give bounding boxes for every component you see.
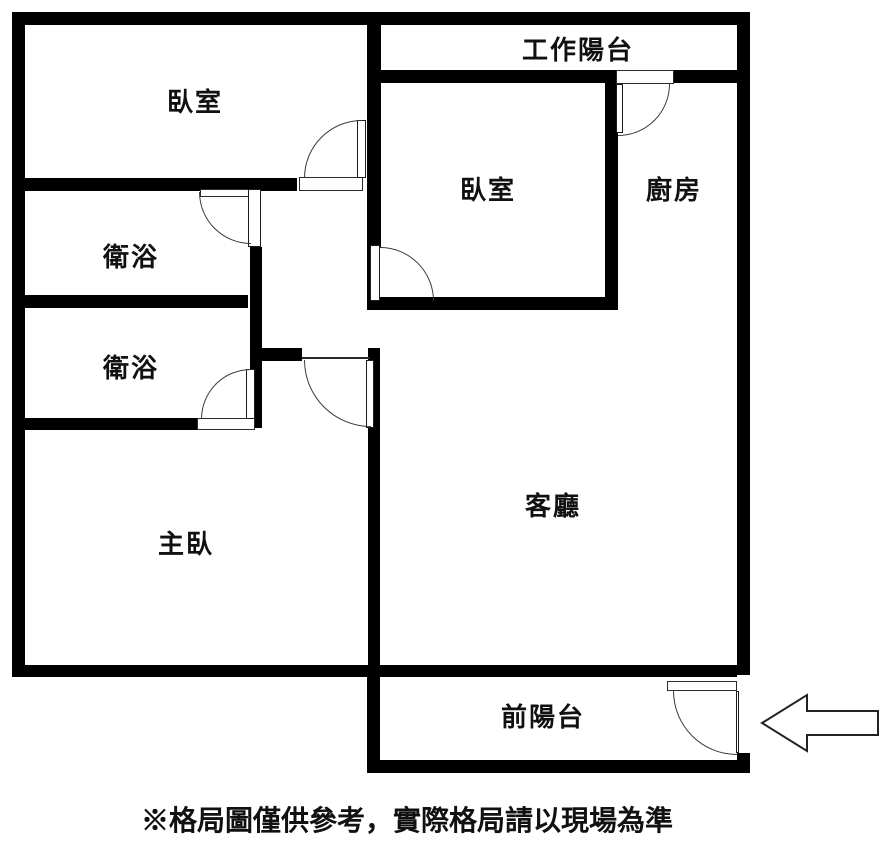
entrance-door-arc xyxy=(673,691,737,755)
bathroom-lower-door-opening xyxy=(197,418,255,430)
wall-center-vertical xyxy=(367,12,381,247)
entrance-arrow-icon xyxy=(758,691,882,755)
entrance-door-opening xyxy=(667,681,737,691)
kitchen-balcony-door-opening xyxy=(616,70,674,84)
floor-plan: 臥室 工作陽台 臥室 廚房 衛浴 衛浴 主臥 客廳 前陽台 ※格局圖僅供參考，實… xyxy=(0,0,889,852)
bathroom-upper-door-arc xyxy=(199,192,251,244)
bedroom1-door-opening xyxy=(299,177,363,191)
wall-left xyxy=(12,12,25,677)
disclaimer-text: ※格局圖僅供參考，實際格局請以現場為準 xyxy=(141,807,673,835)
room-label-master-bedroom: 主臥 xyxy=(158,531,214,557)
wall-frontbalcony-left xyxy=(367,665,380,773)
kitchen-door-arc xyxy=(618,84,670,136)
wall-workbalcony-bottom-right xyxy=(674,70,750,83)
room-label-kitchen: 廚房 xyxy=(646,177,702,203)
room-label-front-balcony: 前陽台 xyxy=(501,704,585,730)
wall-bathroom2-bottom xyxy=(12,418,197,430)
bedroom2-door-leaf xyxy=(370,245,380,301)
wall-bathroom-divider xyxy=(12,295,248,308)
wall-right-upper xyxy=(737,12,750,675)
wall-top xyxy=(12,12,750,25)
room-label-bedroom-center: 臥室 xyxy=(460,177,516,203)
bedroom1-door-arc xyxy=(304,120,362,178)
master-nook-door-lintel-line xyxy=(302,357,370,359)
wall-nook-top xyxy=(262,348,302,361)
room-label-work-balcony: 工作陽台 xyxy=(522,37,634,63)
room-label-bedroom-top-left: 臥室 xyxy=(167,89,223,115)
bedroom2-door-arc xyxy=(380,247,434,301)
bathroom-lower-door-arc xyxy=(201,369,251,419)
room-label-bathroom-upper: 衛浴 xyxy=(103,244,159,270)
master-nook-door-arc xyxy=(304,360,371,427)
wall-frontbalcony-bottom xyxy=(372,760,750,773)
room-label-bathroom-lower: 衛浴 xyxy=(103,355,159,381)
wall-workbalcony-bottom-left xyxy=(381,70,617,83)
room-label-living-room: 客廳 xyxy=(525,493,581,519)
